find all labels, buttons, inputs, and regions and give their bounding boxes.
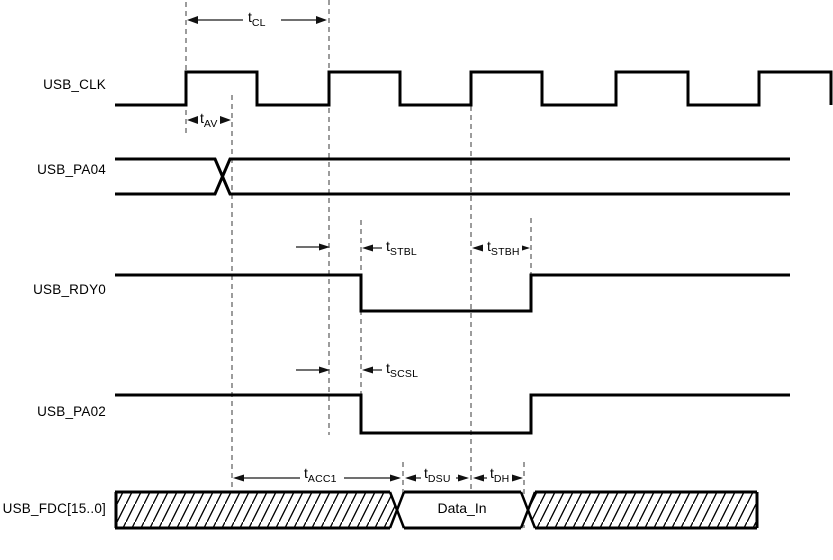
arrowhead-left-icon <box>187 116 198 124</box>
timing-label-tscsl: tSCSL <box>384 361 420 380</box>
arrowhead-right-icon <box>319 244 330 251</box>
timing-label-tav: tAV <box>198 111 220 130</box>
arrowhead-left-icon <box>362 367 373 374</box>
usb-pa04-waveform <box>115 159 790 194</box>
timing-label-tdh: tDH <box>488 466 511 485</box>
timing-diagram: USB_CLK USB_PA04 USB_RDY0 USB_PA02 USB_F… <box>0 0 833 560</box>
diagram-canvas <box>0 0 833 560</box>
arrowhead-right-icon <box>220 116 231 124</box>
signal-label-usb-pa04: USB_PA04 <box>0 162 106 177</box>
arrowhead-right-icon <box>316 16 327 24</box>
arrowhead-left-icon <box>187 16 198 24</box>
arrowhead-right-icon <box>319 367 330 374</box>
timing-label-tcl: tCL <box>246 10 268 29</box>
bus-valid-value-label: Data_In <box>412 500 512 516</box>
usb-pa02-waveform <box>115 395 790 433</box>
timing-label-tacc1: tACC1 <box>302 466 339 485</box>
signal-label-usb-rdy0: USB_RDY0 <box>0 282 106 297</box>
timing-label-tdsu: tDSU <box>422 466 453 485</box>
signal-label-usb-fdc: USB_FDC[15..0] <box>0 501 106 516</box>
arrowhead-left-icon <box>473 475 484 482</box>
arrowhead-left-icon <box>405 475 416 482</box>
arrowhead-right-icon <box>390 475 401 482</box>
arrowhead-right-icon <box>458 475 469 482</box>
bus-invalid-region-left <box>116 492 397 528</box>
arrowhead-left-icon <box>233 475 244 482</box>
arrowhead-left-icon <box>362 245 373 252</box>
bus-invalid-region-right <box>528 492 757 528</box>
usb-rdy0-waveform <box>115 275 790 311</box>
signal-label-usb-clk: USB_CLK <box>0 77 106 92</box>
signal-label-usb-pa02: USB_PA02 <box>0 404 106 419</box>
dashed-guide-lines <box>186 0 531 528</box>
arrowhead-right-icon <box>512 475 523 482</box>
arrowhead-left-icon <box>472 245 483 252</box>
dimension-arrowheads <box>187 16 530 482</box>
timing-label-tstbl: tSTBL <box>384 239 419 258</box>
timing-label-tstbh: tSTBH <box>485 239 522 258</box>
usb-clk-waveform <box>115 72 831 105</box>
